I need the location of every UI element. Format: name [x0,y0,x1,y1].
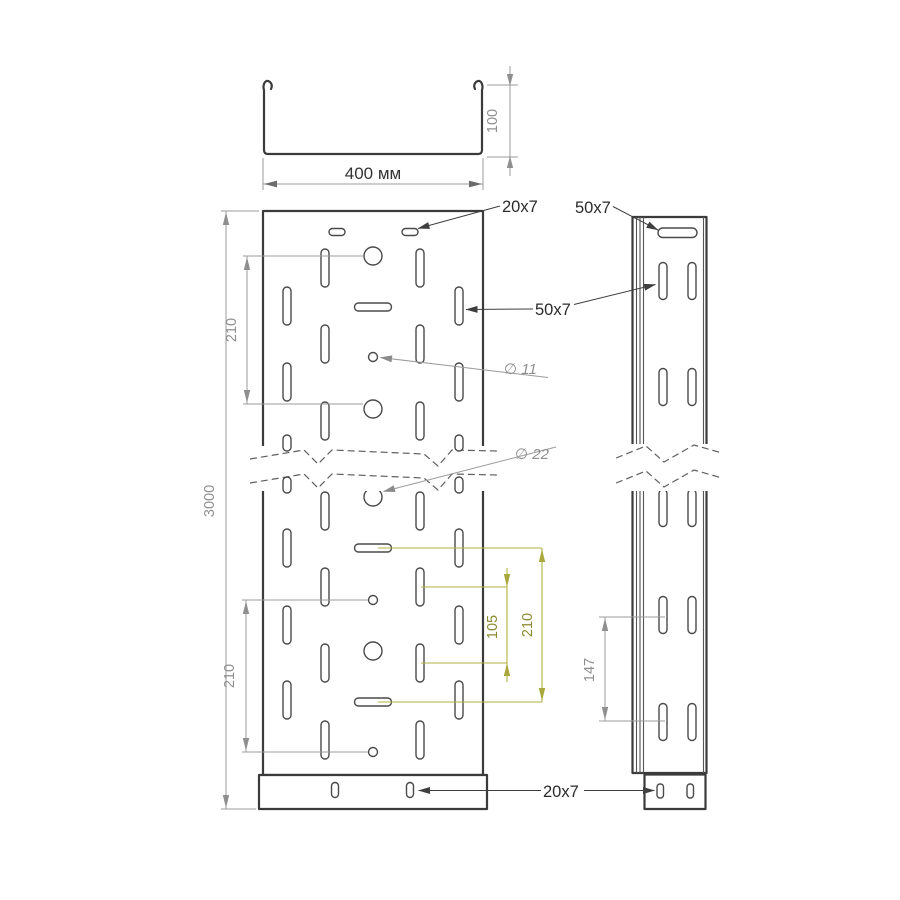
hole-d22 [364,247,382,265]
cross-section-view: 400 мм 100 [263,66,518,190]
hole-d22 [364,400,382,418]
length-dimension-3000: 3000 [202,211,259,809]
row-pitch-text: 210 [520,613,536,637]
front-view [246,211,502,809]
front-flange [259,775,487,809]
hole-d11 [369,748,378,757]
wall-slot-label: 50x7 [535,301,571,319]
side-flange [645,775,706,810]
small-hole-label: ∅ 11 [504,361,537,378]
width-dimension: 400 мм [263,158,483,190]
side-pitch-text: 147 [582,658,598,682]
hole-d22 [364,642,382,660]
width-dimension-text: 400 мм [345,164,401,183]
top-slot-label: 20x7 [502,198,538,216]
height-dimension-text: 100 [485,109,501,133]
slot-pitch-text: 105 [485,615,501,639]
side-break [612,444,730,491]
top-pitch-text: 210 [224,318,240,342]
hole-d11 [369,353,378,362]
flange-slot-label: 20x7 [543,783,579,801]
side-view [612,217,730,809]
hole-d11 [369,596,378,605]
technical-drawing-cable-tray: 400 мм 100 [0,0,900,900]
length-dimension-text: 3000 [202,485,218,517]
side-top-slot-label: 50x7 [575,199,611,217]
channel-profile [264,81,483,154]
drawing-svg: 400 мм 100 [0,0,900,900]
large-hole-label: ∅ 22 [515,446,550,463]
height-dimension: 100 [485,66,518,176]
bottom-pitch-text: 210 [222,664,238,688]
